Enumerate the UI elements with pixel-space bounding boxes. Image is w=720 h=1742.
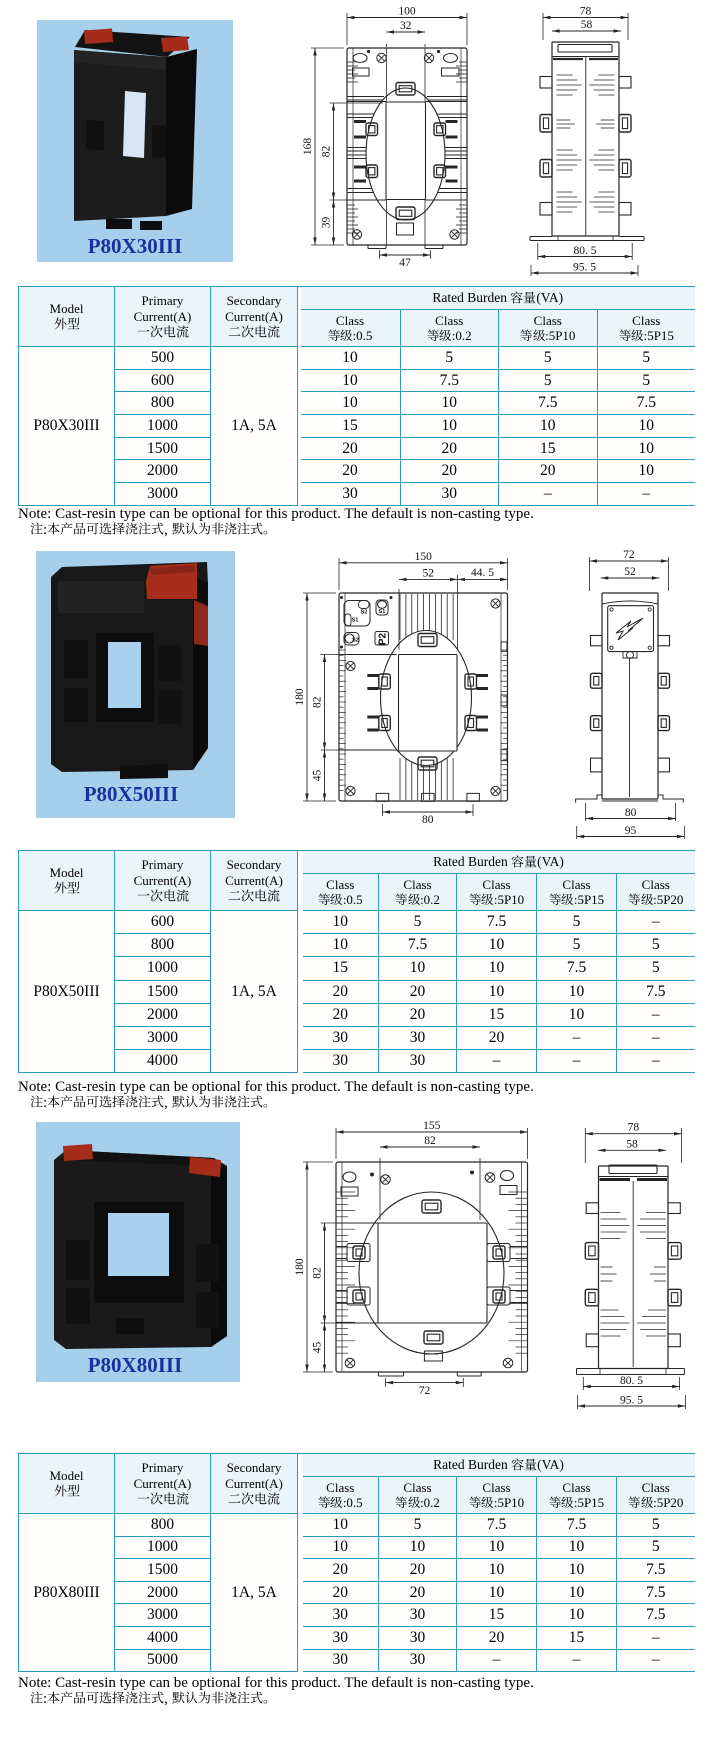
svg-text:82: 82 bbox=[424, 1135, 436, 1147]
svg-text:58: 58 bbox=[626, 1138, 638, 1150]
svg-text:58: 58 bbox=[581, 19, 593, 31]
svg-text:100: 100 bbox=[398, 6, 416, 18]
svg-text:52: 52 bbox=[423, 567, 435, 579]
svg-text:S1: S1 bbox=[352, 618, 359, 624]
svg-text:32: 32 bbox=[400, 20, 412, 32]
svg-text:95. 5: 95. 5 bbox=[573, 262, 596, 274]
svg-text:72: 72 bbox=[419, 1385, 431, 1397]
svg-text:80: 80 bbox=[625, 807, 637, 819]
svg-text:155: 155 bbox=[423, 1120, 441, 1132]
svg-text:39: 39 bbox=[321, 217, 333, 229]
svg-text:P80X50III: P80X50III bbox=[84, 782, 179, 806]
svg-text:82: 82 bbox=[312, 696, 324, 708]
svg-text:180: 180 bbox=[294, 1258, 306, 1276]
svg-text:82: 82 bbox=[312, 1267, 324, 1279]
svg-text:95. 5: 95. 5 bbox=[620, 1395, 643, 1407]
svg-text:52: 52 bbox=[624, 566, 636, 578]
svg-text:45: 45 bbox=[312, 770, 324, 782]
svg-text:P80X30III: P80X30III bbox=[88, 234, 183, 258]
svg-text:P80X80III: P80X80III bbox=[88, 1353, 183, 1377]
svg-text:S1: S1 bbox=[379, 609, 386, 615]
svg-text:82: 82 bbox=[321, 146, 333, 158]
svg-text:168: 168 bbox=[302, 138, 314, 156]
svg-text:72: 72 bbox=[623, 549, 635, 561]
svg-text:80. 5: 80. 5 bbox=[620, 1375, 643, 1387]
svg-text:45: 45 bbox=[312, 1342, 324, 1354]
svg-text:180: 180 bbox=[294, 688, 306, 706]
svg-text:80: 80 bbox=[422, 814, 434, 826]
svg-text:S2: S2 bbox=[352, 638, 359, 644]
svg-text:S2: S2 bbox=[361, 610, 368, 616]
svg-text:P2: P2 bbox=[378, 632, 389, 645]
svg-text:47: 47 bbox=[399, 257, 411, 269]
svg-text:95: 95 bbox=[625, 825, 637, 837]
svg-text:44. 5: 44. 5 bbox=[471, 567, 494, 579]
svg-text:150: 150 bbox=[415, 551, 433, 563]
svg-text:80. 5: 80. 5 bbox=[574, 245, 597, 257]
svg-text:78: 78 bbox=[628, 1122, 640, 1134]
svg-text:78: 78 bbox=[580, 6, 592, 18]
